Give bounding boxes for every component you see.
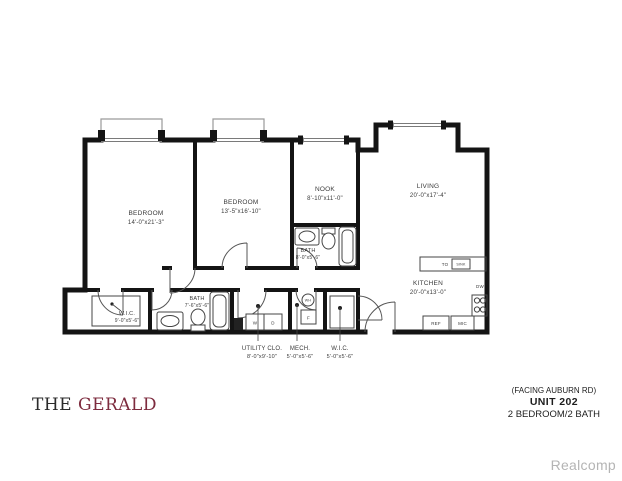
nook-dims: 8'-10"x11'-0" [307, 196, 343, 202]
microwave-label: MIC [458, 321, 467, 326]
bedroom2-door [222, 243, 247, 268]
kitchen-dims: 20'-0"x13'-0" [410, 290, 446, 296]
toilet-bowl [322, 233, 335, 249]
bedroom2-name: BEDROOM [224, 199, 259, 206]
water-heater-label: WH [305, 299, 312, 303]
facing-label: (FACING AUBURN RD) [508, 386, 600, 396]
wic2-door [358, 296, 382, 320]
refrigerator-label: REF [431, 321, 441, 326]
bath1-dims: 8'-0"x5'-6" [296, 255, 321, 261]
nook-name: NOOK [315, 186, 335, 193]
room-labels: BEDROOM 14'-0"x21'-3" BEDROOM 13'-5"x16'… [115, 183, 446, 324]
utility-dims: 8'-0"x9'-10" [247, 354, 277, 360]
bath2-dims: 7'-6"x5'-6" [185, 303, 210, 309]
living-name: LIVING [417, 183, 440, 190]
sink-label: SINK [456, 263, 466, 267]
toilet-tank [191, 325, 205, 331]
mech-name: MECH. [290, 346, 310, 352]
dryer-label: D [271, 321, 275, 326]
kitchen-name: KITCHEN [413, 280, 443, 287]
living-dims: 20'-0"x17'-4" [410, 193, 446, 199]
wic2-name: W.I.C. [331, 346, 349, 352]
bath1-name: BATH [300, 248, 315, 254]
bedroom1-name: BEDROOM [129, 210, 164, 217]
wic1-name: W.I.C. [119, 311, 135, 317]
unit-number: UNIT 202 [508, 396, 600, 409]
utility-appliances: W D [234, 304, 282, 341]
wic2-shelf [330, 296, 354, 328]
bath2-door [152, 290, 172, 310]
unit-config: 2 BEDROOM/2 BATH [508, 409, 600, 421]
toilet-bowl [191, 309, 205, 325]
furnace-label: F [307, 316, 310, 321]
to-label: TO [442, 262, 449, 267]
entry-door [365, 302, 395, 332]
realcomp-watermark: Realcomp [551, 457, 616, 473]
exterior-walls [65, 125, 487, 332]
wic1-dims: 9'-0"x5'-6" [115, 318, 140, 324]
bedroom2-dims: 13'-5"x16'-10" [221, 209, 261, 215]
washer-label: W [253, 321, 258, 326]
dishwasher-label: DW [476, 284, 484, 289]
bedroom1-dims: 14'-0"x21'-3" [128, 220, 164, 226]
property-logo: THE GERALD [32, 395, 157, 415]
below-plan-labels: UTILITY CLO. 8'-0"x9'-10" MECH. 5'-0"x5'… [242, 346, 354, 360]
bath2-name: BATH [189, 296, 204, 302]
logo-name: GERALD [78, 395, 157, 415]
wic2-dims: 5'-0"x5'-6" [327, 354, 354, 360]
utility-name: UTILITY CLO. [242, 346, 282, 352]
mech-dims: 5'-0"x5'-6" [287, 354, 314, 360]
unit-info: (FACING AUBURN RD) UNIT 202 2 BEDROOM/2 … [508, 386, 600, 421]
logo-the: THE [32, 395, 72, 415]
